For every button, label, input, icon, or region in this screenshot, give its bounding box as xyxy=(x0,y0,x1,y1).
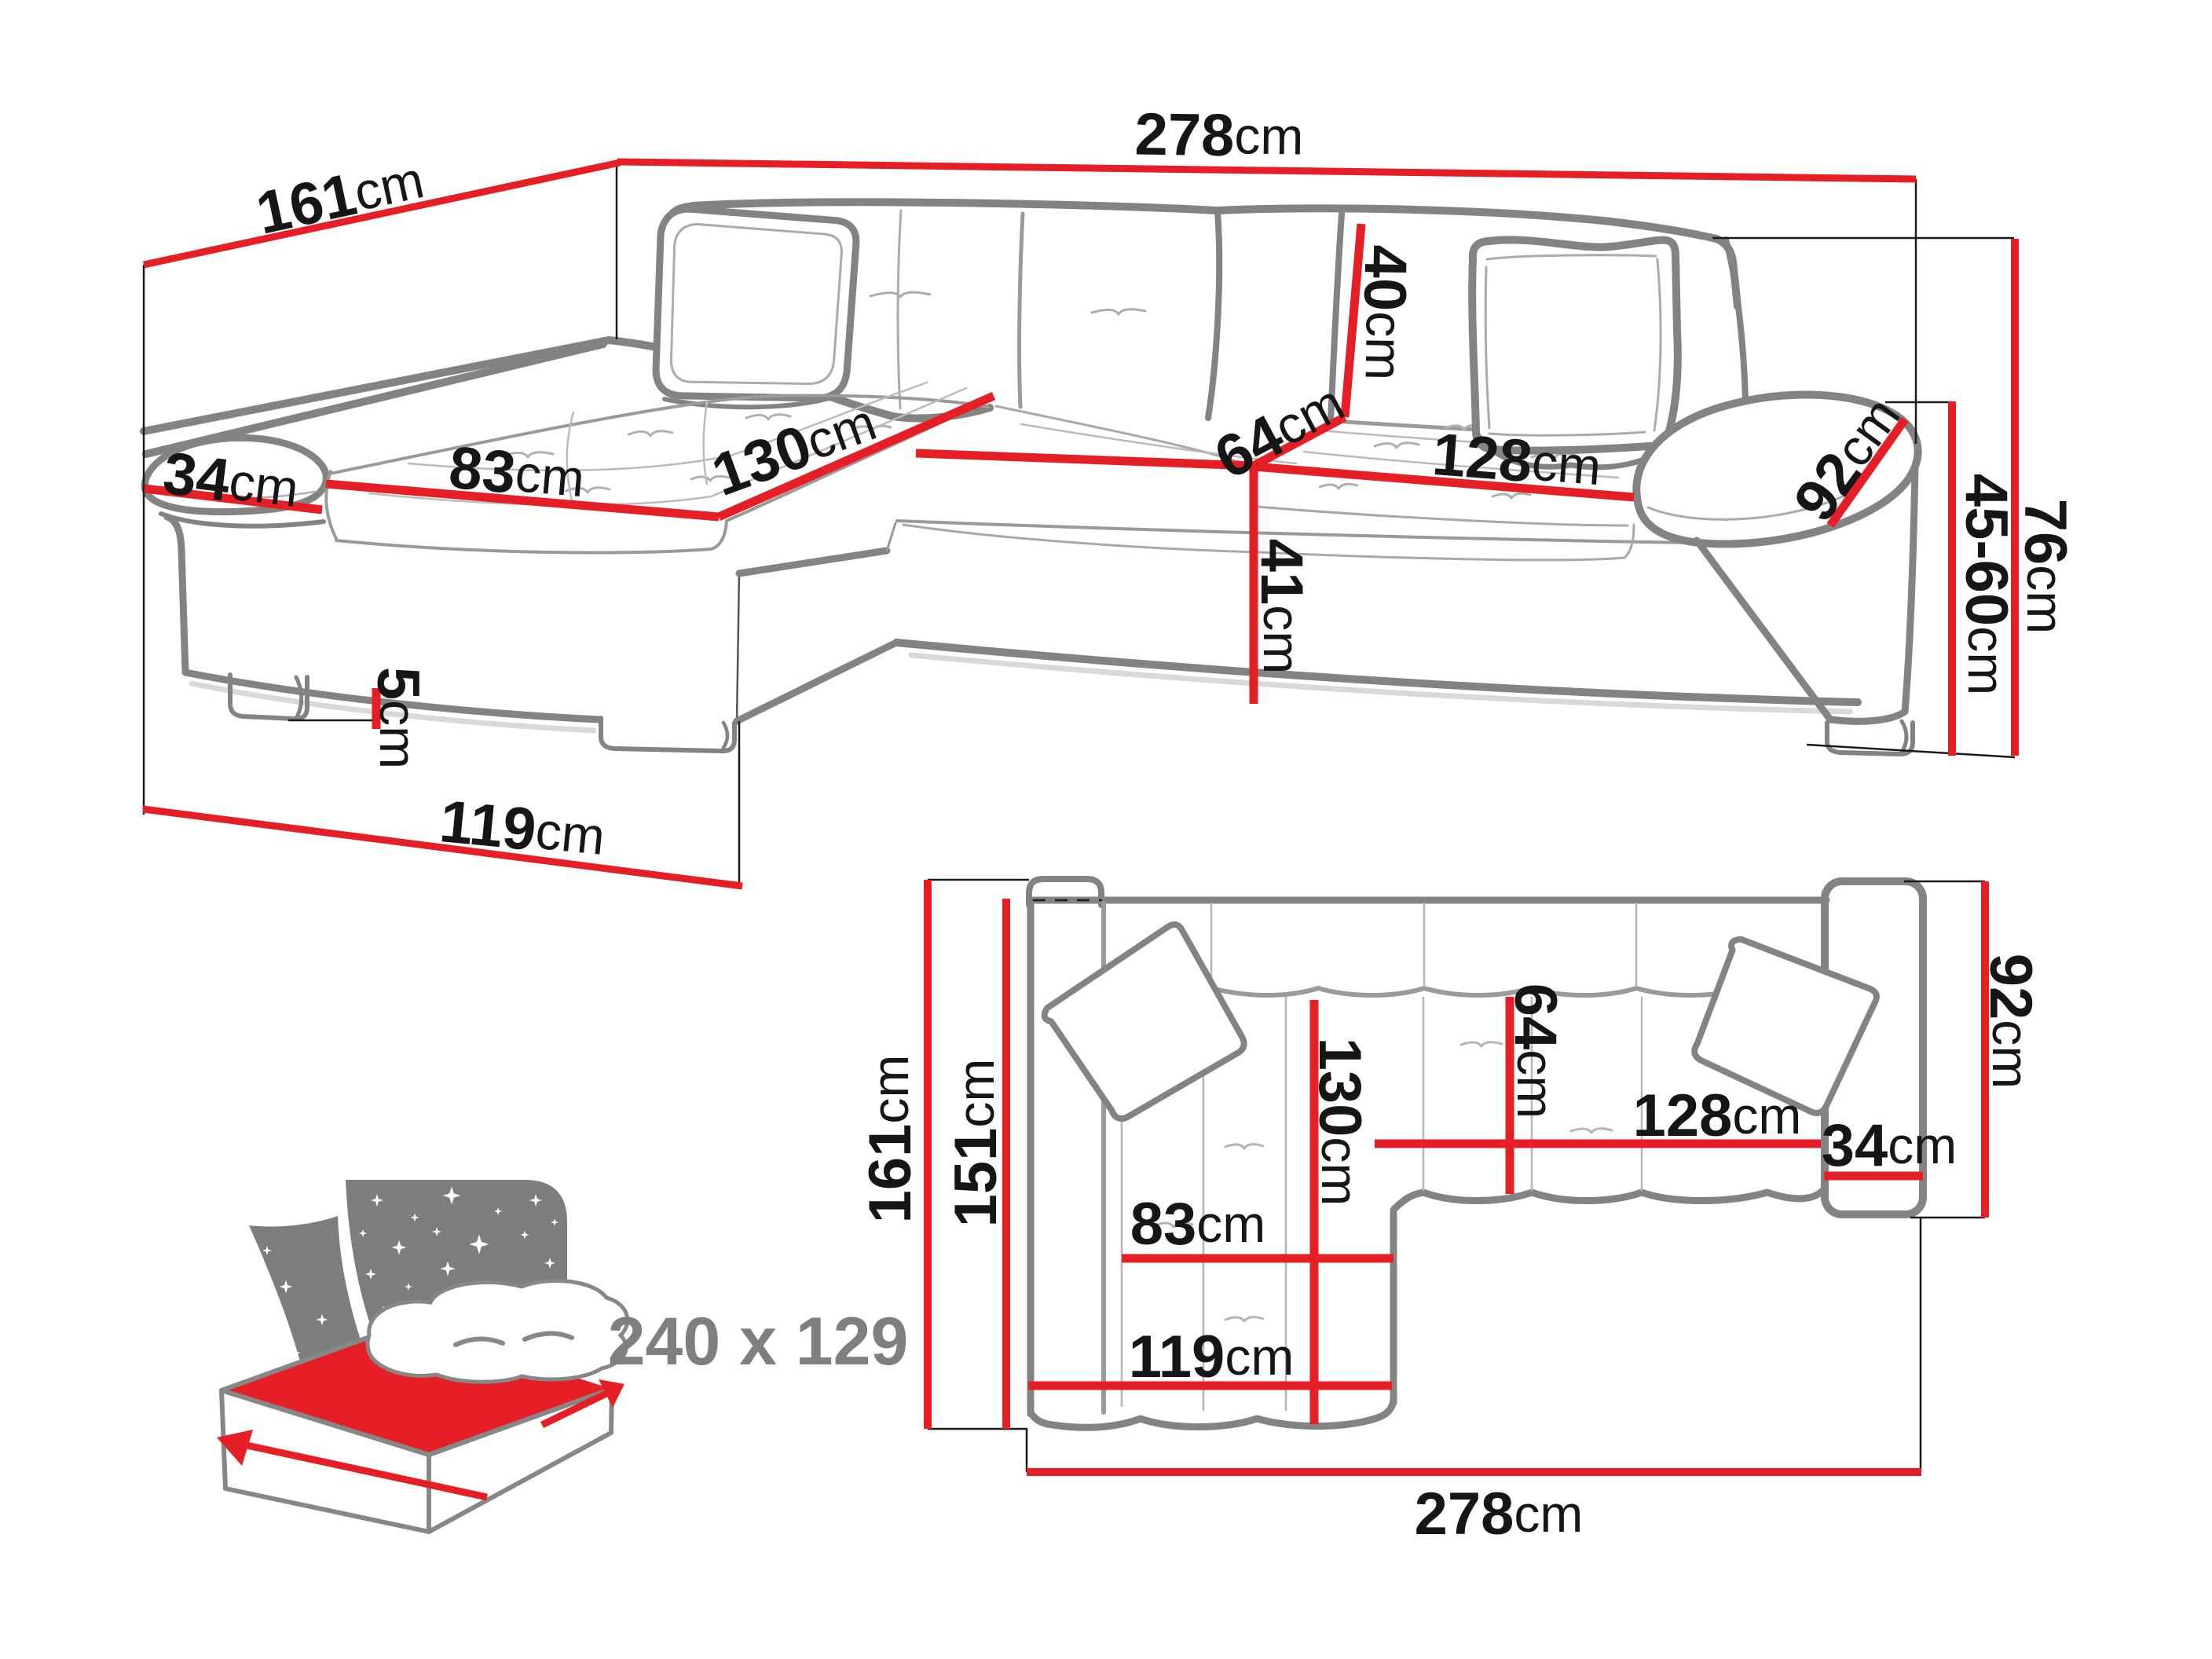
svg-text:92cm: 92cm xyxy=(1978,954,2045,1090)
svg-text:161cm: 161cm xyxy=(857,1055,924,1224)
svg-text:83cm: 83cm xyxy=(1130,1191,1266,1258)
svg-text:41cm: 41cm xyxy=(1249,539,1316,675)
svg-text:119cm: 119cm xyxy=(1129,1324,1295,1390)
svg-text:130cm: 130cm xyxy=(1307,1038,1374,1207)
svg-text:240 x 129: 240 x 129 xyxy=(608,1304,909,1379)
svg-text:34cm: 34cm xyxy=(1822,1112,1957,1179)
svg-text:5cm: 5cm xyxy=(365,667,432,769)
svg-text:278cm: 278cm xyxy=(1415,1481,1584,1547)
svg-text:64cm: 64cm xyxy=(1503,983,1569,1119)
svg-text:278cm: 278cm xyxy=(1134,101,1304,170)
svg-text:76cm: 76cm xyxy=(2012,499,2079,635)
svg-text:45-60cm: 45-60cm xyxy=(1954,474,2020,695)
svg-text:128cm: 128cm xyxy=(1633,1082,1802,1149)
svg-text:151cm: 151cm xyxy=(943,1059,1009,1228)
svg-text:40cm: 40cm xyxy=(1350,244,1419,381)
